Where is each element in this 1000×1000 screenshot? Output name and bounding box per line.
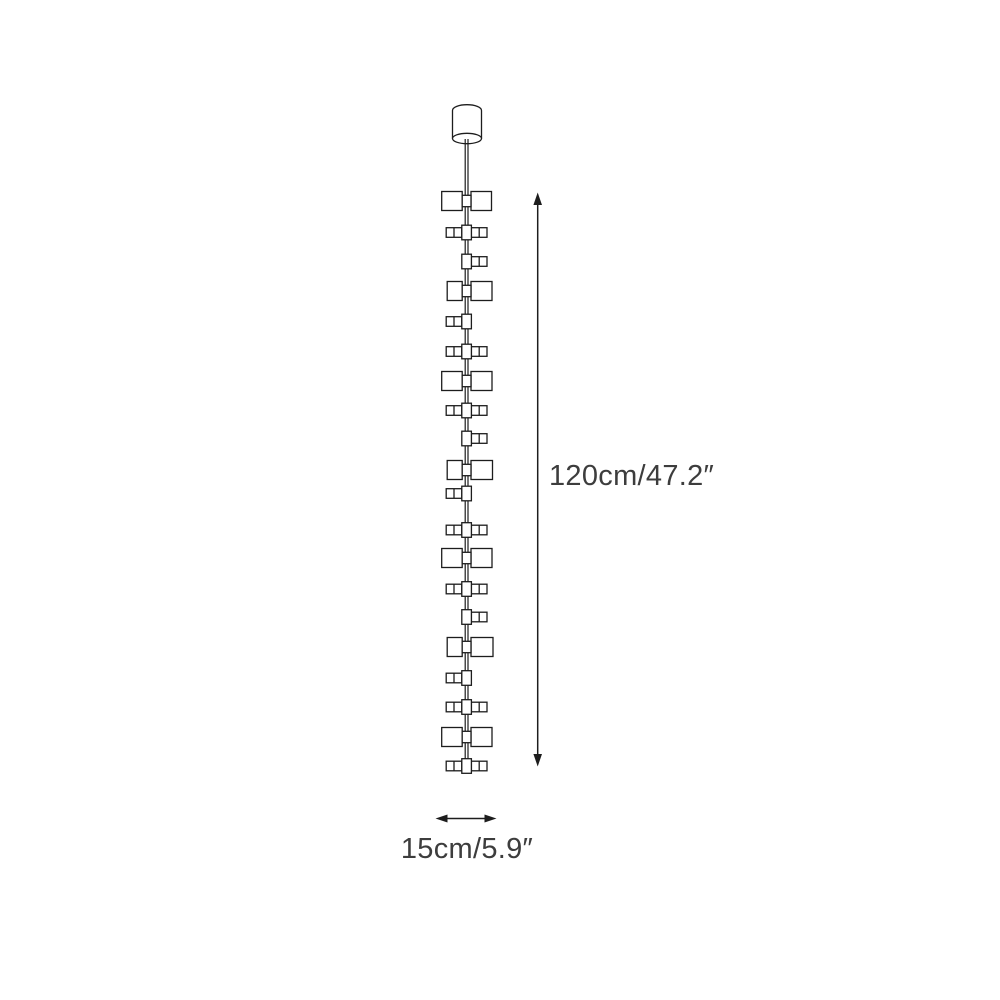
connector [462, 610, 487, 625]
connector [446, 225, 487, 240]
connector [462, 431, 487, 446]
width-dimension-arrow [436, 815, 497, 823]
shade [447, 461, 492, 480]
shade [442, 372, 492, 391]
connector [446, 403, 487, 418]
connector [446, 759, 487, 774]
connector [446, 700, 487, 715]
width-dimension-label: 15cm/5.9″ [401, 834, 533, 864]
connector [446, 582, 487, 597]
diagram: 120cm/47.2″ 15cm/5.9″ [0, 0, 1000, 1000]
connector [446, 486, 471, 501]
shade [442, 549, 492, 568]
height-dimension-label: 120cm/47.2″ [549, 461, 714, 491]
connector [462, 254, 487, 269]
shade [447, 638, 493, 657]
shade [442, 728, 492, 747]
shade [442, 192, 492, 211]
connector [446, 314, 471, 329]
height-dimension-arrow [533, 193, 542, 767]
connector [446, 523, 487, 538]
connector [446, 344, 487, 359]
shade [447, 282, 492, 301]
connector [446, 671, 471, 686]
canopy [453, 105, 482, 144]
